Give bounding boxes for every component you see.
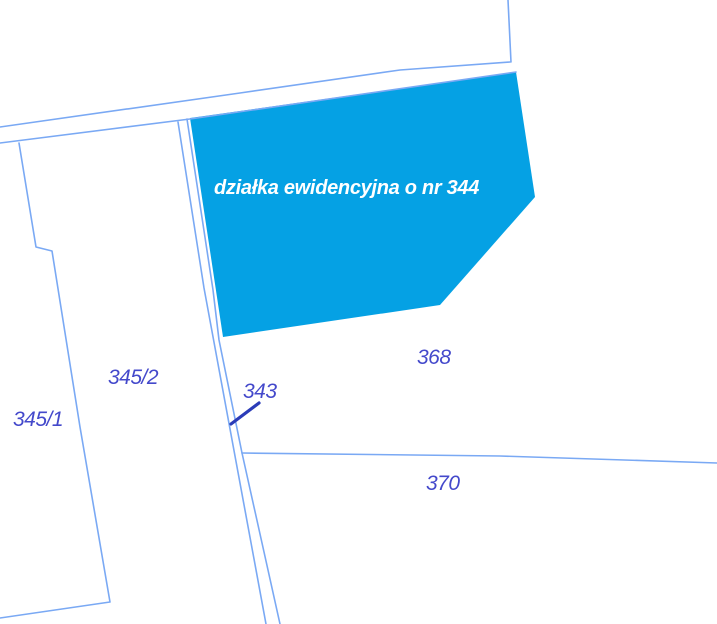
top-vertical-boundary-line (508, 0, 511, 62)
parcel-label-343: 343 (243, 380, 277, 403)
parcel-label-370: 370 (426, 472, 460, 495)
parcel-368-370-divider-line (242, 453, 717, 463)
cadastral-map-layer (0, 0, 717, 624)
map-canvas[interactable]: działka ewidencyjna o nr 344 345/2 345/1… (0, 0, 717, 624)
parcel-label-345-2: 345/2 (108, 366, 158, 389)
parcel-345-boundary-line (0, 143, 110, 618)
parcel-label-345-1: 345/1 (13, 408, 63, 431)
parcel-343-leader-line (231, 403, 259, 424)
parcel-label-344: działka ewidencyjna o nr 344 (214, 177, 479, 199)
parcel-label-368: 368 (417, 346, 451, 369)
